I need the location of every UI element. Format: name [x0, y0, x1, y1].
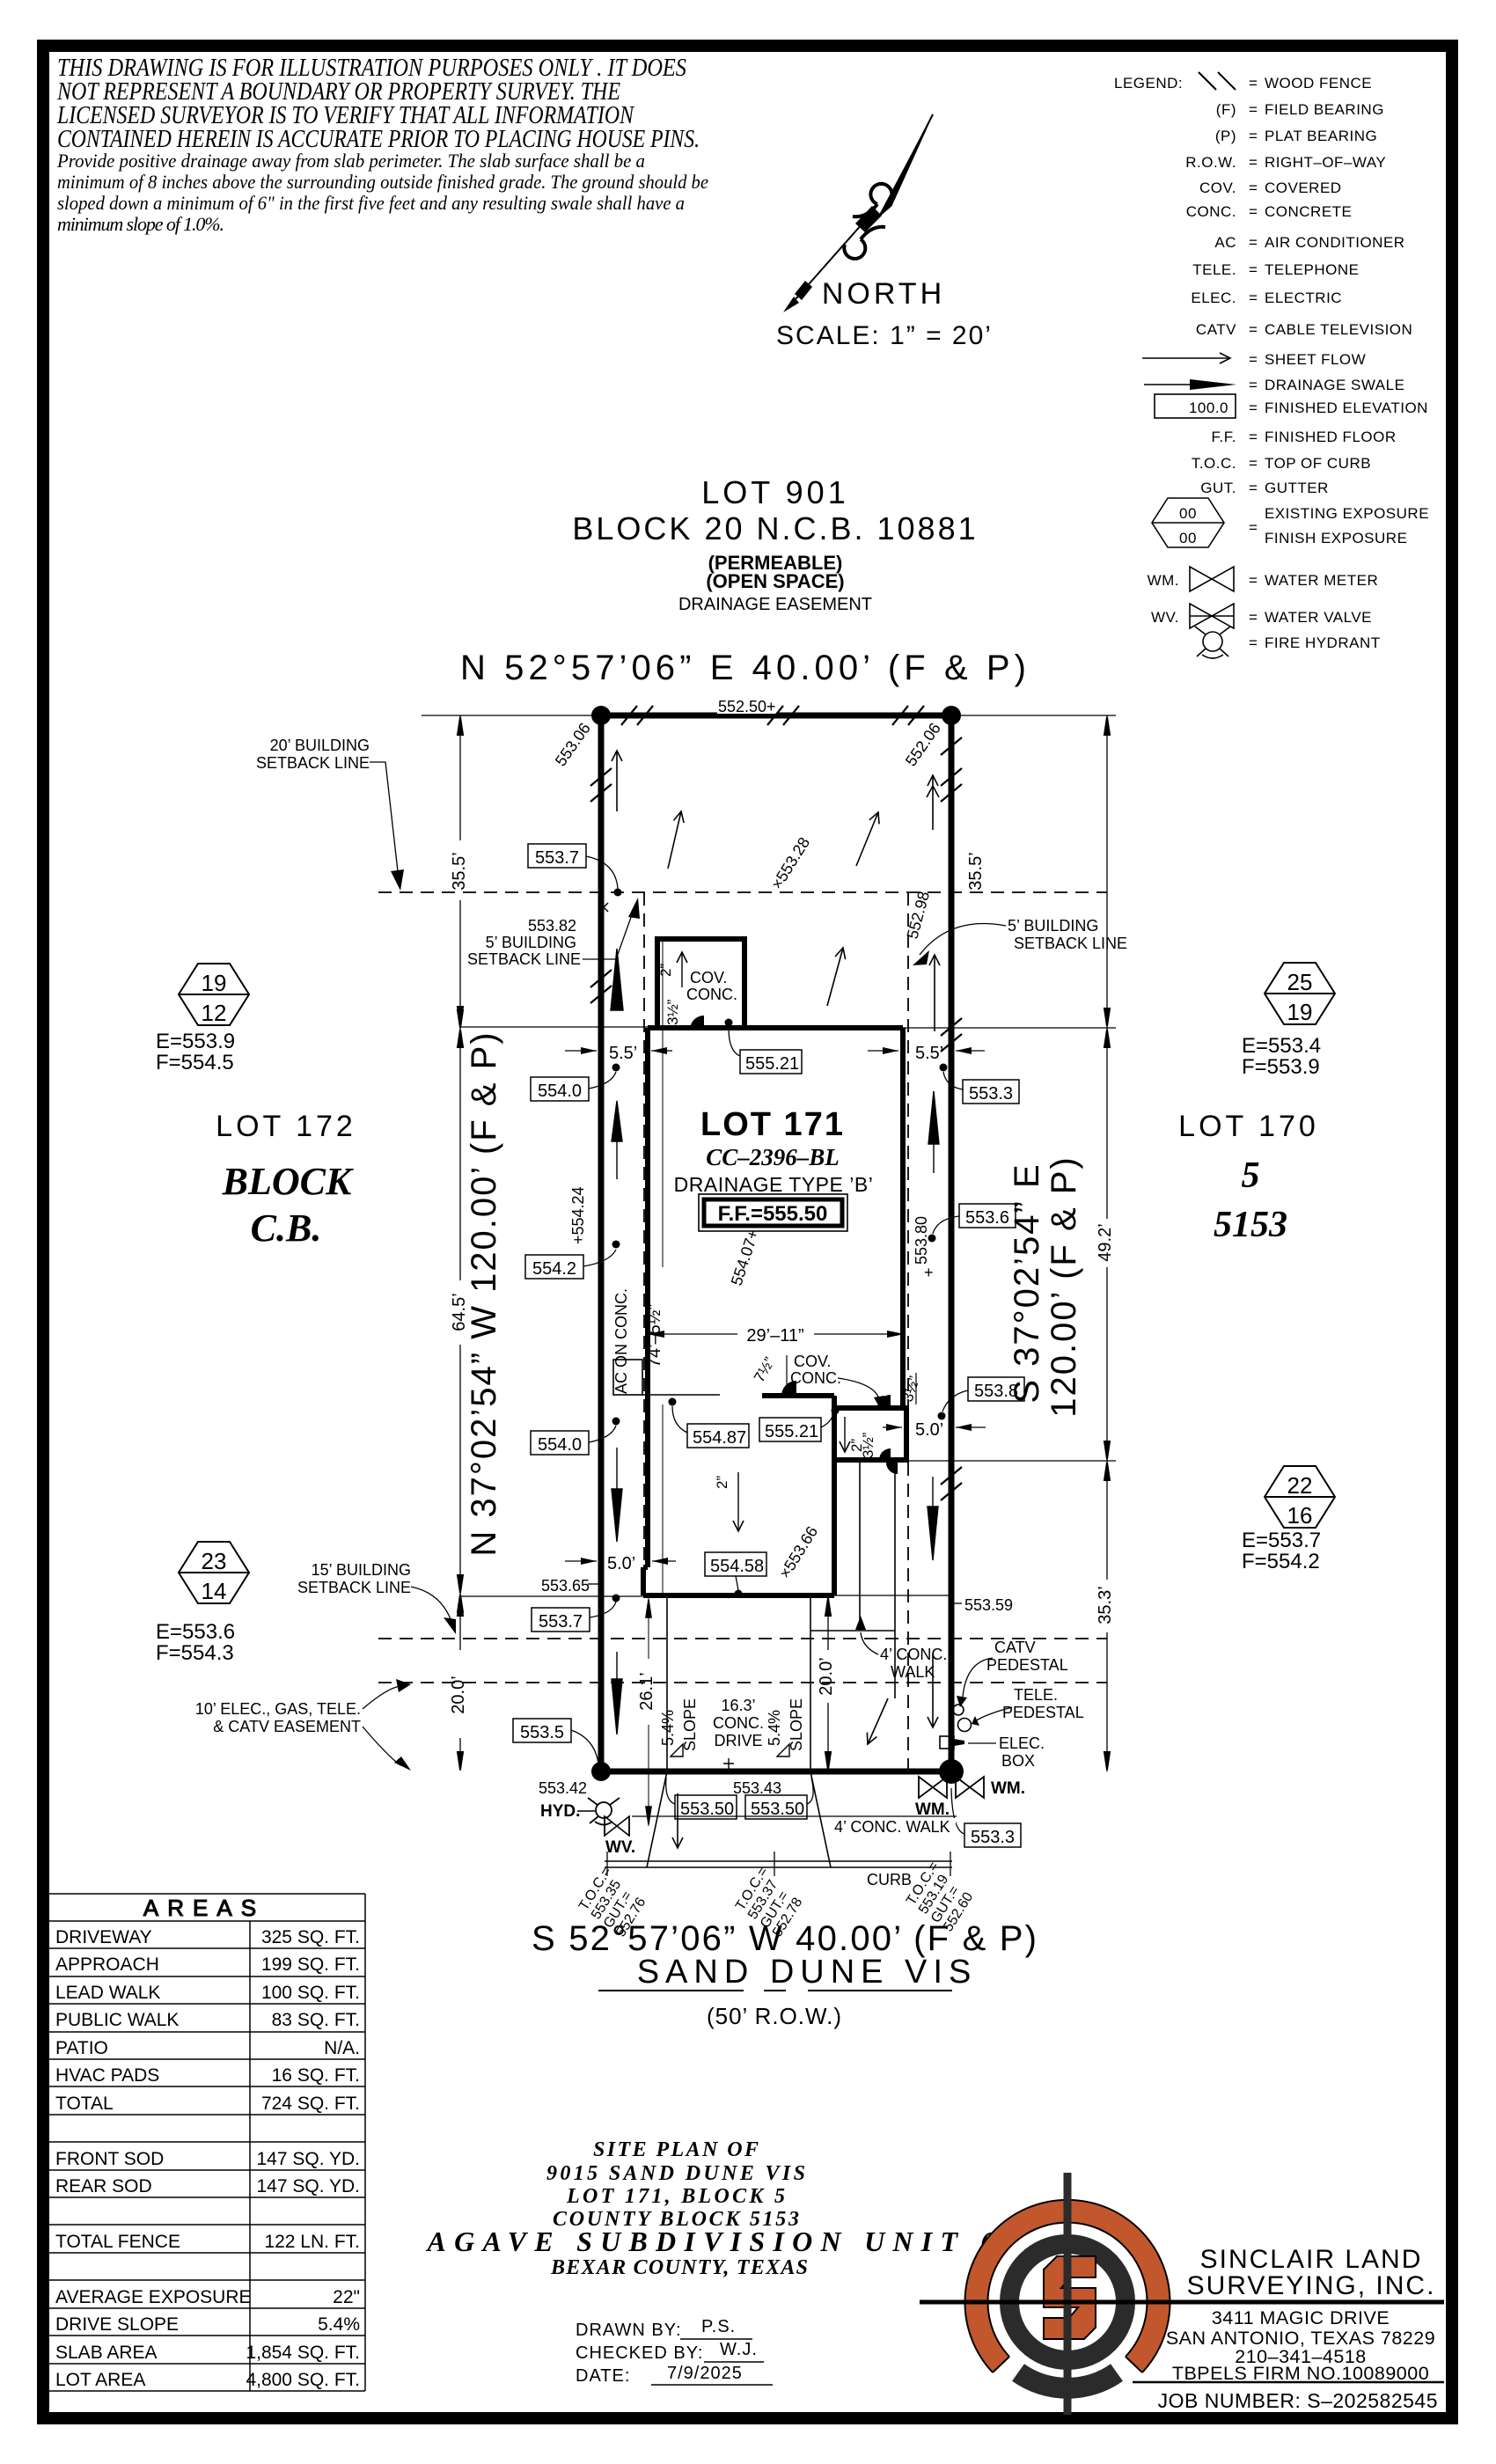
- svg-text:FINISHED FLOOR: FINISHED FLOOR: [1265, 429, 1397, 445]
- svg-text:E=553.9: E=553.9: [156, 1030, 235, 1053]
- svg-text:F.F.=555.50: F.F.=555.50: [718, 1202, 828, 1226]
- svg-text:AC: AC: [1214, 234, 1236, 251]
- svg-text:WM.: WM.: [1148, 572, 1179, 589]
- svg-text:=: =: [1249, 351, 1258, 368]
- svg-text:20.0’: 20.0’: [817, 1657, 836, 1695]
- svg-text:5’ BUILDING: 5’ BUILDING: [486, 934, 576, 951]
- svg-text:SINCLAIR LAND: SINCLAIR LAND: [1200, 2245, 1423, 2274]
- svg-text:F=553.9: F=553.9: [1242, 1055, 1320, 1079]
- svg-text:147 SQ. YD.: 147 SQ. YD.: [256, 2149, 360, 2169]
- svg-text:CABLE TELEVISION: CABLE TELEVISION: [1265, 321, 1412, 338]
- svg-text:=: =: [1249, 261, 1258, 278]
- svg-text:=: =: [1249, 377, 1258, 393]
- svg-text:E=553.4: E=553.4: [1242, 1034, 1321, 1058]
- svg-text:122 LN. FT.: 122 LN. FT.: [264, 2232, 360, 2252]
- svg-text:SURVEYING, INC.: SURVEYING, INC.: [1187, 2271, 1436, 2300]
- svg-text:553.7: 553.7: [539, 1612, 583, 1632]
- svg-text:SETBACK LINE: SETBACK LINE: [297, 1579, 411, 1596]
- svg-text:=: =: [1249, 321, 1258, 338]
- svg-text:20’ BUILDING: 20’ BUILDING: [270, 737, 370, 754]
- svg-text:SCALE: 1” = 20’: SCALE: 1” = 20’: [776, 321, 993, 350]
- svg-text:AC ON CONC.: AC ON CONC.: [612, 1288, 630, 1394]
- svg-text:CC–2396–BL: CC–2396–BL: [706, 1144, 840, 1170]
- svg-text:19: 19: [202, 970, 227, 996]
- svg-text:724 SQ. FT.: 724 SQ. FT.: [261, 2094, 360, 2114]
- svg-text:TOP OF CURB: TOP OF CURB: [1265, 455, 1371, 472]
- svg-text:553.3: 553.3: [969, 1084, 1013, 1104]
- svg-text:=: =: [1249, 572, 1258, 589]
- svg-text:12: 12: [202, 1000, 227, 1026]
- svg-text:TBPELS FIRM NO.10089000: TBPELS FIRM NO.10089000: [1172, 2363, 1429, 2384]
- svg-text:22": 22": [333, 2287, 360, 2307]
- svg-text:AIR CONDITIONER: AIR CONDITIONER: [1265, 234, 1405, 251]
- svg-text:16.3’: 16.3’: [721, 1697, 755, 1714]
- svg-text:5.0’: 5.0’: [607, 1554, 635, 1573]
- svg-text:BOX: BOX: [1001, 1752, 1035, 1770]
- svg-text:COV.: COV.: [794, 1353, 831, 1370]
- svg-text:4’ CONC.: 4’ CONC.: [880, 1646, 947, 1663]
- svg-text:F=554.5: F=554.5: [156, 1051, 234, 1074]
- svg-text:LEGEND:: LEGEND:: [1114, 75, 1183, 92]
- svg-text:553.42: 553.42: [539, 1779, 587, 1797]
- svg-text:=: =: [1249, 519, 1258, 536]
- svg-text:325 SQ. FT.: 325 SQ. FT.: [261, 1927, 360, 1947]
- svg-text:29’–11”: 29’–11”: [746, 1326, 803, 1346]
- svg-text:SETBACK LINE: SETBACK LINE: [467, 950, 581, 968]
- svg-text:16 SQ. FT.: 16 SQ. FT.: [272, 2065, 360, 2086]
- svg-text:LOT 171: LOT 171: [700, 1106, 845, 1143]
- svg-text:RIGHT–OF–WAY: RIGHT–OF–WAY: [1265, 154, 1386, 171]
- svg-text:COV.: COV.: [690, 969, 727, 986]
- svg-text:=: =: [1249, 128, 1258, 144]
- svg-text:BLOCK 20 N.C.B. 10881: BLOCK 20 N.C.B. 10881: [572, 510, 978, 546]
- svg-text:553.59: 553.59: [964, 1596, 1013, 1614]
- svg-text:E=553.7: E=553.7: [1242, 1529, 1321, 1552]
- svg-text:CHECKED BY:: CHECKED BY:: [576, 2343, 703, 2363]
- svg-text:552.50+: 552.50+: [718, 698, 776, 715]
- svg-text:FIRE HYDRANT: FIRE HYDRANT: [1265, 634, 1381, 651]
- svg-text:23: 23: [202, 1548, 227, 1574]
- svg-text:DRIVE: DRIVE: [714, 1732, 762, 1749]
- svg-text:HVAC PADS: HVAC PADS: [55, 2065, 159, 2086]
- svg-text:FINISH EXPOSURE: FINISH EXPOSURE: [1265, 530, 1407, 546]
- svg-text:=: =: [1249, 480, 1258, 496]
- svg-text:14: 14: [202, 1578, 227, 1604]
- svg-text:R.O.W.: R.O.W.: [1185, 154, 1236, 171]
- svg-text:5153: 5153: [1214, 1205, 1287, 1245]
- svg-text:SLOPE: SLOPE: [788, 1698, 805, 1751]
- svg-text:FIELD BEARING: FIELD BEARING: [1265, 101, 1384, 118]
- svg-text:CATV: CATV: [994, 1639, 1036, 1656]
- svg-text:CONCRETE: CONCRETE: [1265, 203, 1352, 220]
- svg-text:ELEC.: ELEC.: [999, 1734, 1045, 1752]
- svg-text:553.80: 553.80: [913, 1216, 930, 1265]
- svg-text:DRAWN BY:: DRAWN BY:: [576, 2321, 682, 2340]
- svg-text:+554.24: +554.24: [569, 1186, 587, 1244]
- svg-text:DATE:: DATE:: [576, 2366, 630, 2386]
- svg-text:ELECTRIC: ELECTRIC: [1265, 290, 1342, 306]
- svg-text:4,800 SQ. FT.: 4,800 SQ. FT.: [246, 2370, 360, 2390]
- svg-text:555.21: 555.21: [765, 1422, 818, 1441]
- svg-text:35.5’: 35.5’: [450, 852, 469, 890]
- svg-text:16: 16: [1287, 1502, 1313, 1529]
- svg-text:LOT 901: LOT 901: [701, 474, 848, 510]
- svg-text:554.0: 554.0: [538, 1435, 582, 1455]
- svg-text:=: =: [1249, 75, 1258, 92]
- svg-text:GUT.: GUT.: [1200, 480, 1236, 496]
- svg-text:554.0: 554.0: [538, 1082, 582, 1101]
- svg-text:DRIVEWAY: DRIVEWAY: [55, 1927, 152, 1947]
- svg-text:5.4%: 5.4%: [318, 2314, 360, 2335]
- svg-text:SITE PLAN OF: SITE PLAN OF: [593, 2138, 759, 2161]
- svg-text:SAND DUNE VIS: SAND DUNE VIS: [637, 1954, 978, 1991]
- svg-text:SETBACK LINE: SETBACK LINE: [256, 754, 370, 772]
- svg-text:T.O.C.: T.O.C.: [1192, 455, 1236, 472]
- svg-text:GUTTER: GUTTER: [1265, 480, 1329, 496]
- svg-text:CONC.: CONC.: [713, 1714, 764, 1732]
- svg-text:553.82: 553.82: [528, 917, 576, 935]
- svg-text:WV.: WV.: [605, 1838, 635, 1857]
- svg-text:553.65: 553.65: [541, 1577, 590, 1595]
- svg-text:=: =: [1249, 400, 1258, 416]
- svg-text:5’ BUILDING: 5’ BUILDING: [1008, 917, 1098, 935]
- svg-text:SLOPE: SLOPE: [681, 1698, 699, 1751]
- svg-text:22: 22: [1287, 1472, 1313, 1499]
- svg-text:120.00’ (F & P): 120.00’ (F & P): [1045, 1155, 1083, 1418]
- svg-text:15’ BUILDING: 15’ BUILDING: [312, 1561, 411, 1579]
- svg-text:& CATV EASEMENT: & CATV EASEMENT: [213, 1718, 361, 1735]
- svg-text:COVERED: COVERED: [1265, 180, 1342, 196]
- svg-text:553.6: 553.6: [965, 1208, 1009, 1228]
- svg-text:N 37°02’54” W 120.00’ (F & P): N 37°02’54” W 120.00’ (F & P): [465, 1030, 503, 1556]
- svg-text:C.B.: C.B.: [251, 1206, 322, 1250]
- svg-text:DRAINAGE TYPE ’B’: DRAINAGE TYPE ’B’: [674, 1173, 874, 1196]
- svg-text:00: 00: [1179, 505, 1197, 522]
- svg-text:555.21: 555.21: [745, 1054, 799, 1074]
- svg-text:100 SQ. FT.: 100 SQ. FT.: [261, 1983, 360, 2003]
- svg-text:N/A.: N/A.: [324, 2038, 360, 2058]
- svg-text:TELE.: TELE.: [1192, 261, 1236, 278]
- svg-text:(50’ R.O.W.): (50’ R.O.W.): [707, 2003, 842, 2029]
- svg-text:=: =: [1249, 180, 1258, 196]
- svg-text:35.5’: 35.5’: [966, 852, 986, 890]
- svg-text:WV.: WV.: [1151, 609, 1179, 626]
- svg-text:3411 MAGIC DRIVE: 3411 MAGIC DRIVE: [1212, 2307, 1390, 2328]
- svg-text:199 SQ. FT.: 199 SQ. FT.: [261, 1954, 360, 1975]
- svg-text:=: =: [1249, 455, 1258, 472]
- svg-text:554.2: 554.2: [532, 1259, 576, 1279]
- svg-text:ELEC.: ELEC.: [1191, 290, 1236, 306]
- svg-text:minimum of 8 inches above the: minimum of 8 inches above the surroundin…: [57, 171, 708, 193]
- svg-text:5.4%: 5.4%: [766, 1710, 783, 1746]
- svg-text:00: 00: [1179, 530, 1197, 546]
- svg-text:F.F.: F.F.: [1212, 429, 1236, 445]
- svg-text:5.0’: 5.0’: [915, 1420, 943, 1440]
- svg-text:=: =: [1249, 634, 1258, 651]
- svg-text:7/9/2025: 7/9/2025: [667, 2364, 743, 2383]
- svg-text:F=554.2: F=554.2: [1242, 1550, 1320, 1573]
- svg-text:BLOCK: BLOCK: [222, 1160, 354, 1203]
- svg-text:554.58: 554.58: [710, 1557, 764, 1576]
- svg-text:WATER VALVE: WATER VALVE: [1265, 609, 1372, 626]
- svg-text:REAR SOD: REAR SOD: [55, 2176, 152, 2196]
- svg-text:TELEPHONE: TELEPHONE: [1265, 261, 1359, 278]
- svg-text:2”: 2”: [657, 964, 674, 977]
- svg-text:WALK: WALK: [891, 1663, 935, 1681]
- svg-text:AVERAGE EXPOSURE: AVERAGE EXPOSURE: [55, 2287, 252, 2307]
- svg-text:PEDESTAL: PEDESTAL: [986, 1656, 1068, 1674]
- svg-text:CURB: CURB: [867, 1871, 912, 1888]
- svg-text:LOT 170: LOT 170: [1178, 1110, 1319, 1143]
- svg-text:SHEET FLOW: SHEET FLOW: [1265, 351, 1366, 368]
- svg-text:553.43: 553.43: [733, 1779, 781, 1797]
- svg-text:3½”: 3½”: [664, 999, 681, 1025]
- svg-text:APPROACH: APPROACH: [55, 1954, 159, 1975]
- svg-text:25: 25: [1287, 969, 1313, 995]
- svg-text:(OPEN SPACE): (OPEN SPACE): [706, 570, 844, 592]
- svg-text:=: =: [1249, 203, 1258, 220]
- svg-text:5: 5: [1242, 1155, 1260, 1196]
- svg-text:SLAB AREA: SLAB AREA: [55, 2343, 158, 2363]
- svg-text:CONC.: CONC.: [1186, 203, 1236, 220]
- svg-text:LOT 172: LOT 172: [216, 1110, 356, 1143]
- svg-text:1,854 SQ. FT.: 1,854 SQ. FT.: [246, 2343, 360, 2363]
- svg-text:83 SQ. FT.: 83 SQ. FT.: [272, 2010, 360, 2030]
- svg-text:2”: 2”: [714, 1476, 730, 1489]
- svg-text:+: +: [924, 1264, 934, 1281]
- svg-text:E=553.6: E=553.6: [156, 1620, 235, 1644]
- svg-text:(P): (P): [1215, 128, 1236, 144]
- svg-text:(F): (F): [1216, 101, 1236, 118]
- svg-text:F=554.3: F=554.3: [156, 1641, 234, 1665]
- svg-text:P.S.: P.S.: [701, 2317, 736, 2336]
- svg-text:BEXAR COUNTY, TEXAS: BEXAR COUNTY, TEXAS: [550, 2256, 808, 2279]
- svg-text:COV.: COV.: [1199, 180, 1236, 196]
- svg-text:FINISHED ELEVATION: FINISHED ELEVATION: [1265, 400, 1428, 416]
- svg-text:5.5’: 5.5’: [915, 1044, 943, 1063]
- svg-text:JOB NUMBER: S–202582545: JOB NUMBER: S–202582545: [1158, 2389, 1438, 2412]
- svg-text:5.5’: 5.5’: [609, 1044, 637, 1063]
- svg-text:AREAS: AREAS: [143, 1895, 265, 1921]
- svg-text:FRONT SOD: FRONT SOD: [55, 2149, 164, 2169]
- svg-text:=: =: [1249, 101, 1258, 118]
- svg-text:554.87: 554.87: [693, 1428, 746, 1448]
- svg-text:S 52°57’06” W 40.00’ (F & P): S 52°57’06” W 40.00’ (F & P): [532, 1919, 1038, 1958]
- svg-text:NORTH: NORTH: [822, 277, 945, 311]
- svg-text:5.4%: 5.4%: [659, 1710, 677, 1746]
- svg-text:W.J.: W.J.: [720, 2340, 758, 2359]
- svg-text:=: =: [1249, 234, 1258, 251]
- svg-text:DRIVE SLOPE: DRIVE SLOPE: [55, 2314, 179, 2335]
- svg-text:PATIO: PATIO: [55, 2038, 108, 2058]
- svg-text:Provide positive drainage away: Provide positive drainage away from slab…: [56, 150, 645, 172]
- svg-text:CATV: CATV: [1196, 321, 1236, 338]
- svg-text:EXISTING EXPOSURE: EXISTING EXPOSURE: [1265, 505, 1429, 522]
- svg-text:10’ ELEC., GAS, TELE.: 10’ ELEC., GAS, TELE.: [195, 1700, 361, 1718]
- svg-text:WM.: WM.: [991, 1779, 1025, 1798]
- svg-text:WOOD FENCE: WOOD FENCE: [1265, 75, 1372, 92]
- svg-text:CONC.: CONC.: [686, 986, 737, 1003]
- svg-text:4’ CONC. WALK: 4’ CONC. WALK: [834, 1818, 950, 1836]
- svg-text:=: =: [1249, 609, 1258, 626]
- svg-text:WATER METER: WATER METER: [1265, 572, 1378, 589]
- svg-text:AGAVE SUBDIVISION UNIT 6: AGAVE SUBDIVISION UNIT 6: [426, 2226, 995, 2257]
- svg-text:553.5: 553.5: [520, 1723, 564, 1742]
- svg-text:LOT AREA: LOT AREA: [55, 2370, 145, 2390]
- svg-text:3½”: 3½”: [860, 1432, 876, 1458]
- svg-text:19: 19: [1287, 999, 1313, 1025]
- svg-text:minimum slope of 1.0%.: minimum slope of 1.0%.: [57, 213, 224, 235]
- svg-text:TELE.: TELE.: [1014, 1686, 1058, 1704]
- svg-text:sloped down a minimum of 6" in: sloped down a minimum of 6" in the first…: [57, 192, 685, 214]
- svg-text:PEDESTAL: PEDESTAL: [1002, 1704, 1084, 1721]
- svg-text:=: =: [1249, 429, 1258, 445]
- svg-text:DRAINAGE SWALE: DRAINAGE SWALE: [1265, 377, 1404, 393]
- svg-text:DRAINAGE EASEMENT: DRAINAGE EASEMENT: [678, 595, 872, 614]
- svg-text:=: =: [1249, 154, 1258, 171]
- svg-text:=: =: [1249, 290, 1258, 306]
- svg-text:CONC.: CONC.: [790, 1369, 841, 1387]
- svg-text:553.3: 553.3: [971, 1828, 1015, 1847]
- svg-text:553.7: 553.7: [535, 848, 579, 868]
- svg-text:26.1’: 26.1’: [637, 1672, 656, 1710]
- svg-text:TOTAL FENCE: TOTAL FENCE: [55, 2232, 180, 2252]
- svg-text:147 SQ. YD.: 147 SQ. YD.: [256, 2176, 360, 2196]
- svg-text:35.3’: 35.3’: [1096, 1586, 1115, 1624]
- svg-text:100.0: 100.0: [1189, 400, 1228, 416]
- svg-text:PLAT BEARING: PLAT BEARING: [1265, 128, 1377, 144]
- svg-text:TOTAL: TOTAL: [55, 2094, 114, 2114]
- svg-text:PUBLIC WALK: PUBLIC WALK: [55, 2010, 179, 2030]
- svg-text:LEAD WALK: LEAD WALK: [55, 1983, 160, 2003]
- svg-text:49.2’: 49.2’: [1096, 1223, 1115, 1261]
- svg-text:20.0’: 20.0’: [449, 1676, 468, 1713]
- svg-text:HYD.: HYD.: [540, 1802, 580, 1821]
- svg-text:SETBACK LINE: SETBACK LINE: [1014, 935, 1127, 952]
- svg-text:S 37°02’54” E: S 37°02’54” E: [1008, 1162, 1046, 1403]
